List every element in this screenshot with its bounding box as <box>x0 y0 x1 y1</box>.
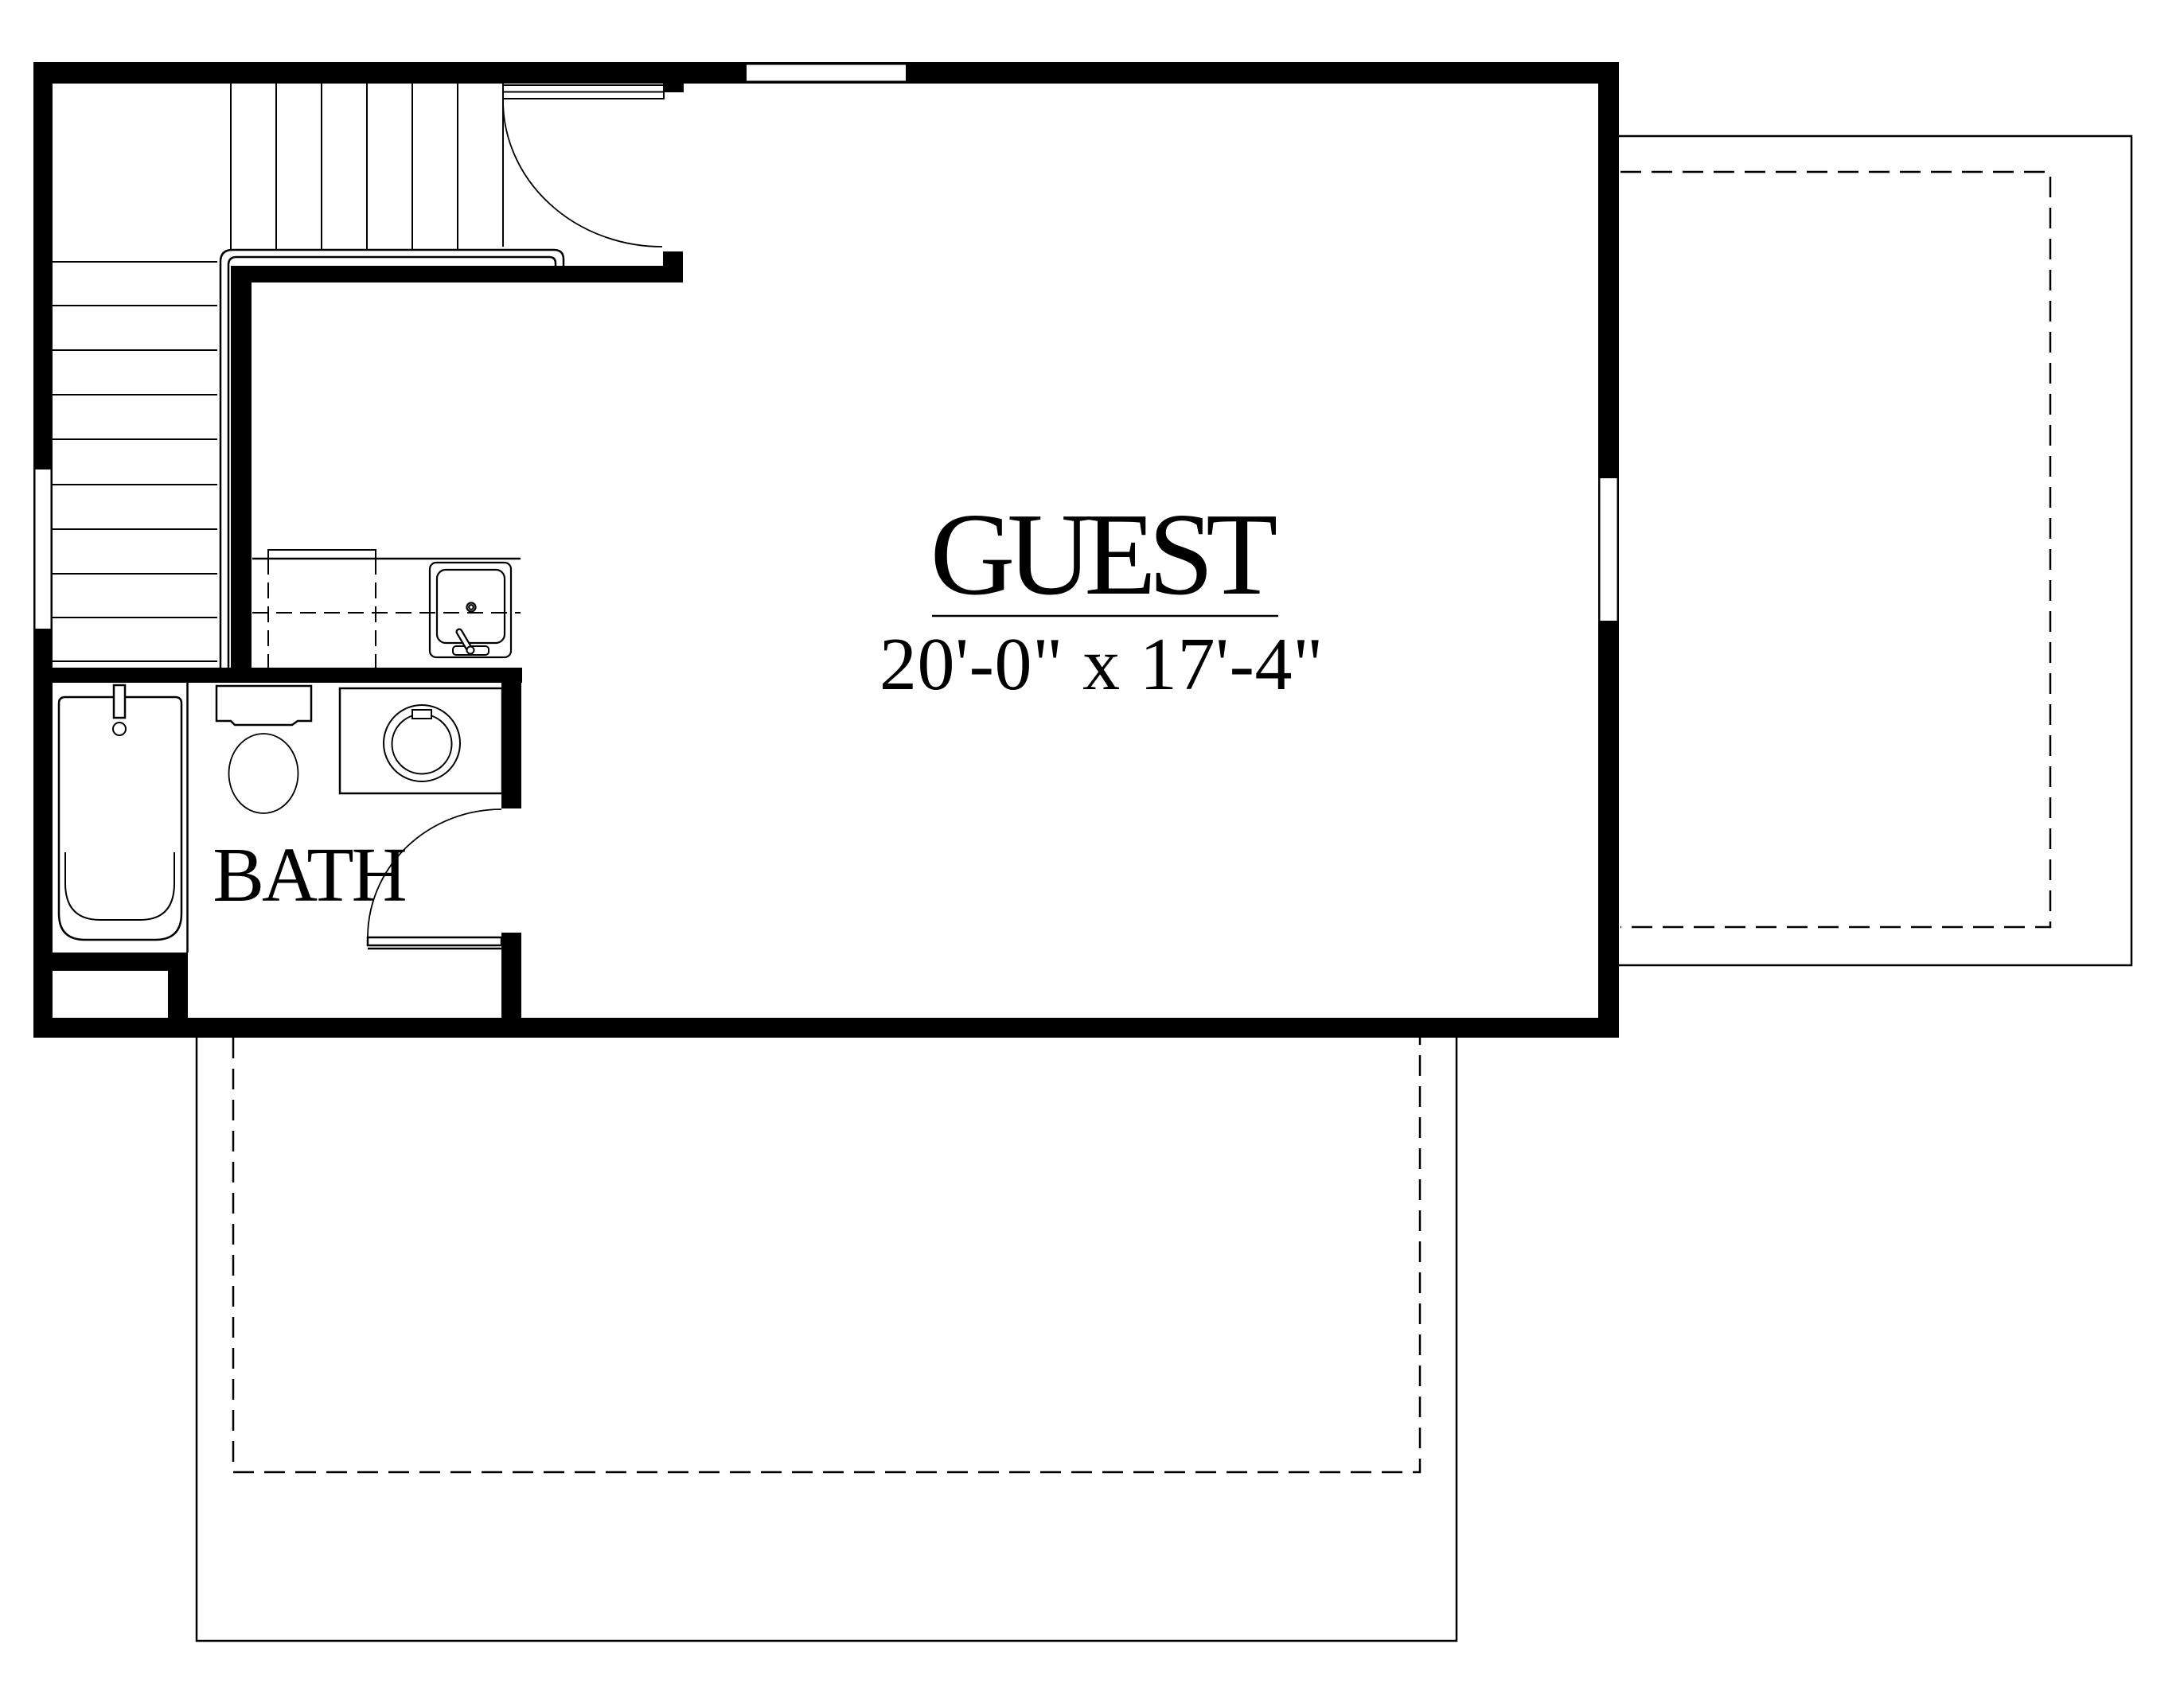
svg-text:GUEST: GUEST <box>930 489 1276 620</box>
svg-text:BATH: BATH <box>213 832 405 918</box>
svg-text:20'-0" x 17'-4": 20'-0" x 17'-4" <box>879 623 1324 706</box>
